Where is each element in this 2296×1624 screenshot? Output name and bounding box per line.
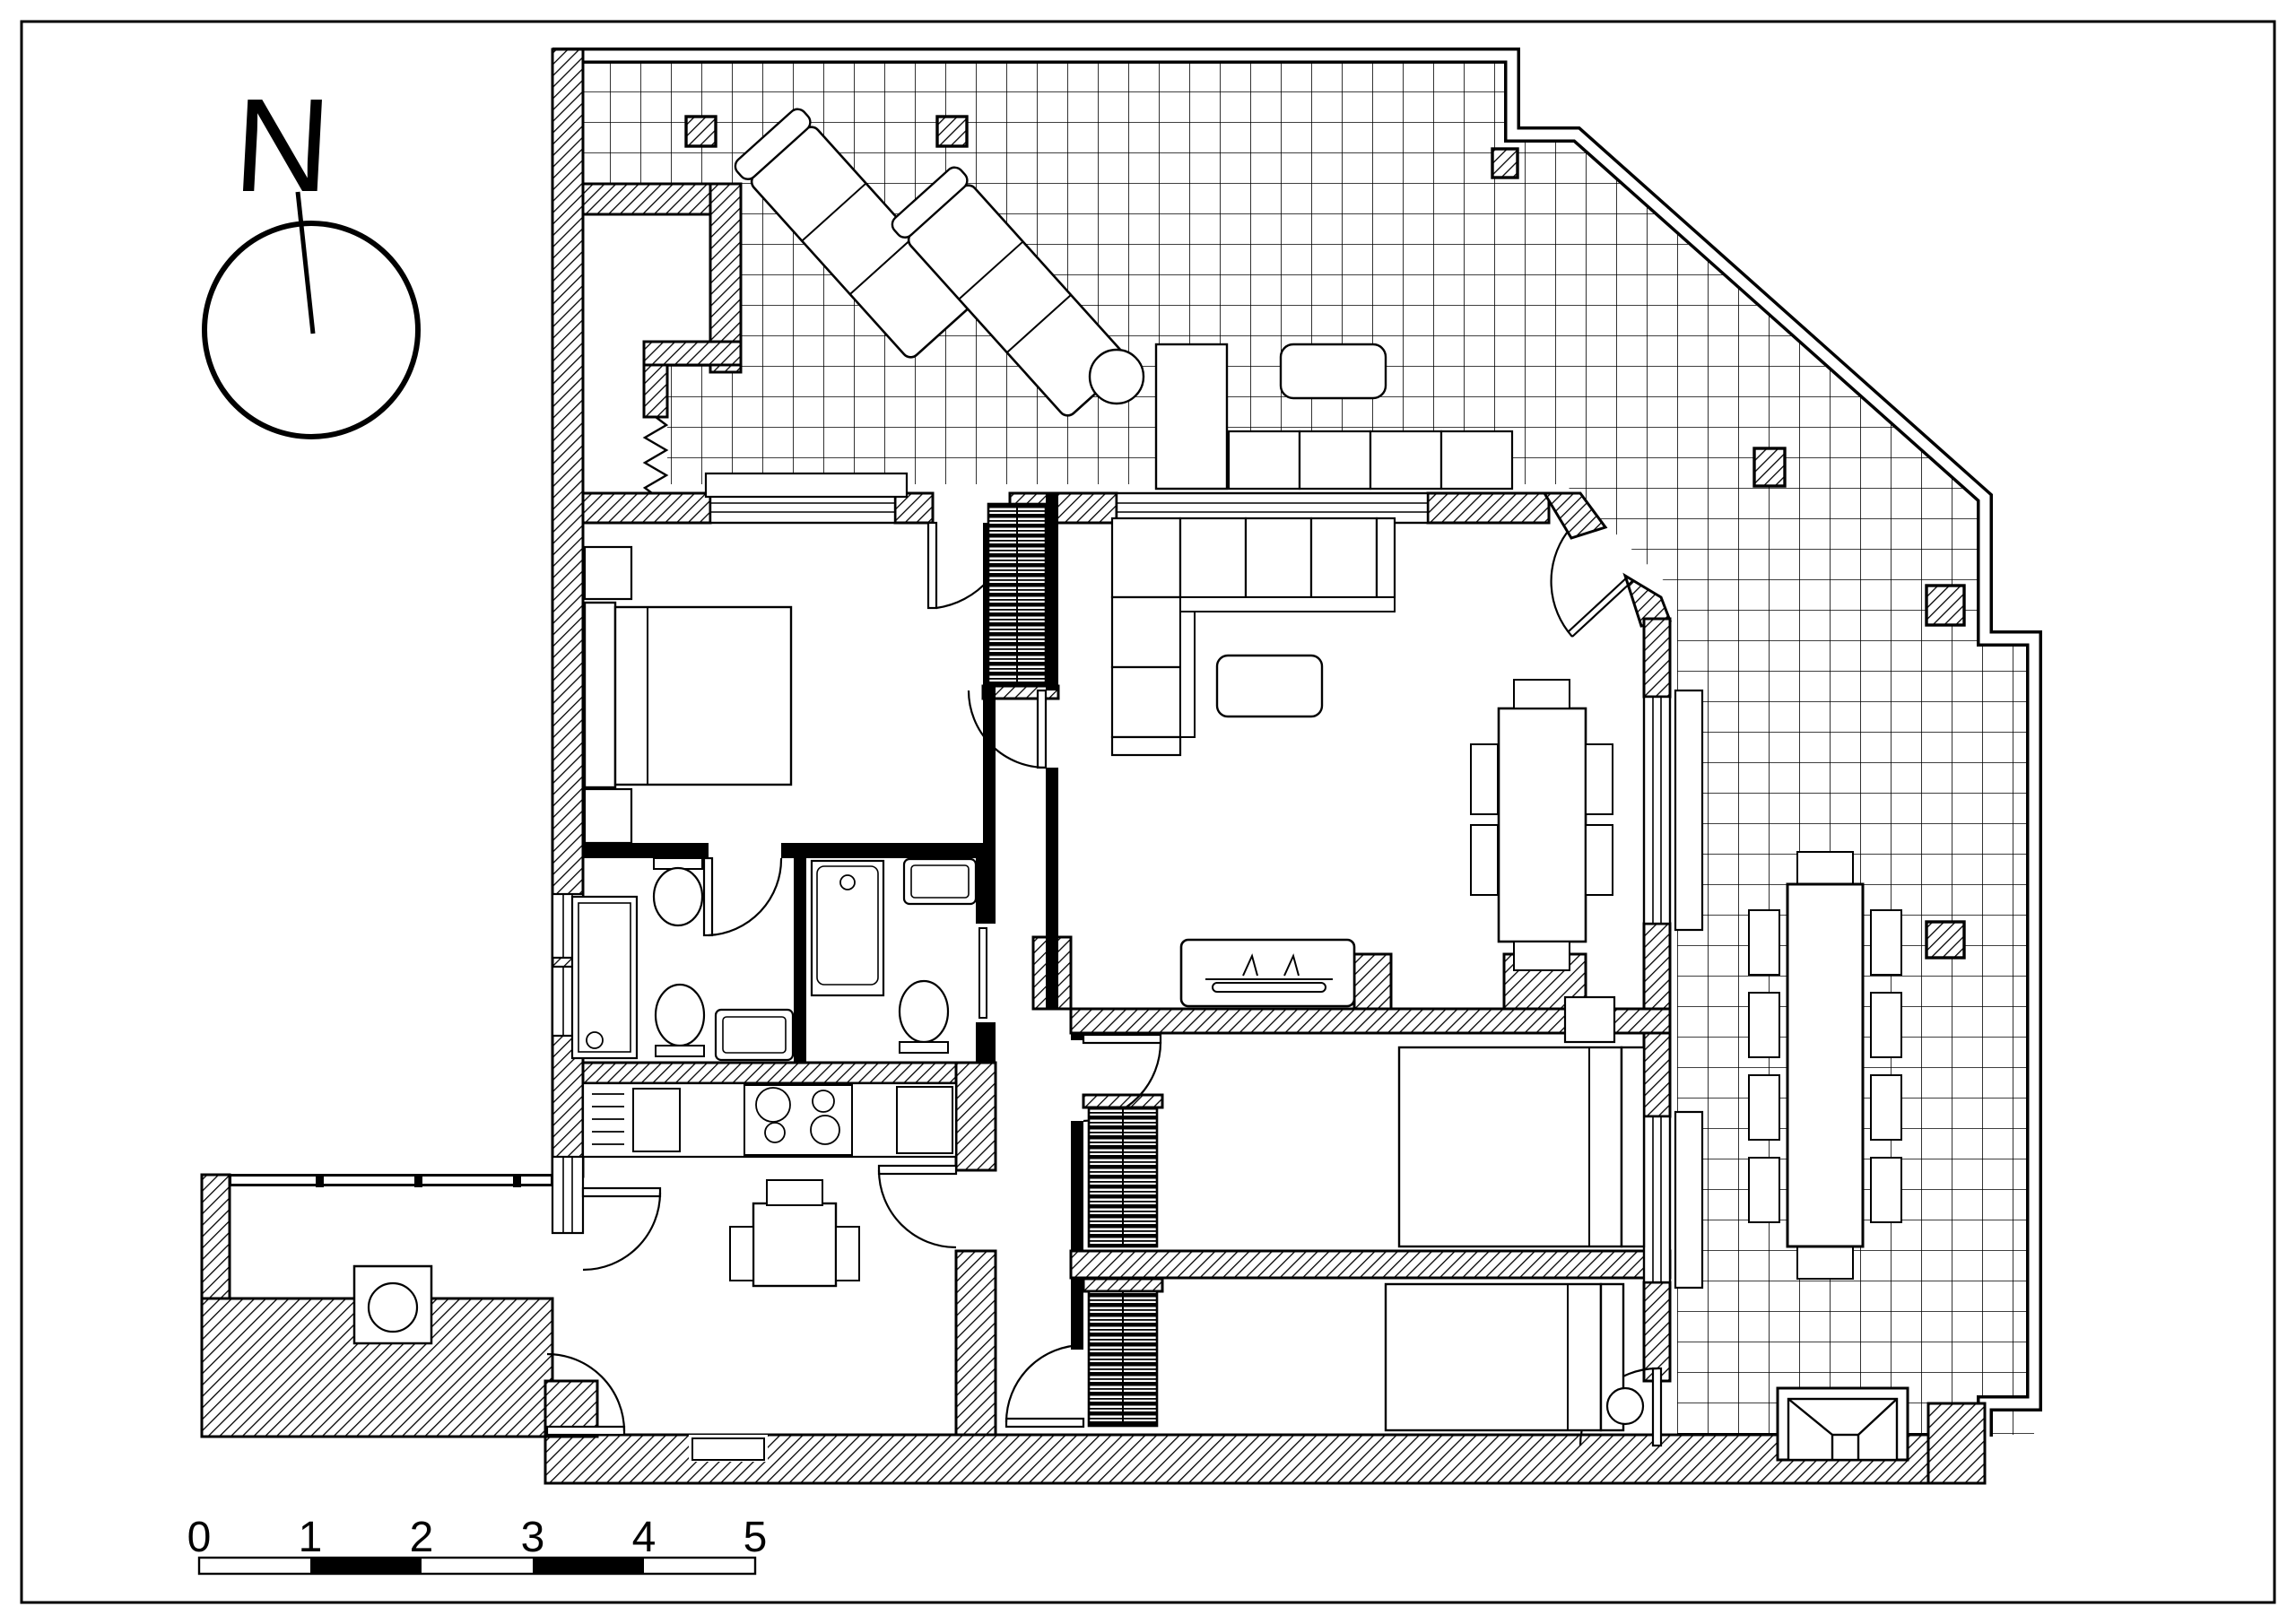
chair	[836, 1227, 859, 1281]
bedroom3	[1386, 1284, 1643, 1430]
closet-cap	[1083, 1279, 1162, 1291]
window-sill	[1675, 690, 1702, 930]
scale-label-5: 5	[744, 1514, 768, 1561]
storage-wall-stub	[644, 365, 667, 417]
column	[1926, 586, 1964, 625]
bathtub-drain-icon	[840, 875, 855, 890]
wall-bath2-right	[976, 1022, 996, 1063]
chair	[1471, 825, 1498, 895]
kitchen-appliance	[897, 1087, 952, 1153]
chair	[1514, 942, 1570, 970]
column	[1754, 448, 1785, 486]
column	[686, 117, 716, 146]
bed-headboard	[1622, 1047, 1644, 1246]
scale-label-0: 0	[187, 1514, 212, 1561]
wall-bed2-left	[1071, 1033, 1083, 1040]
storage-wall-jog	[644, 342, 741, 365]
window-sill	[1675, 1112, 1702, 1288]
wall-pier	[1354, 954, 1391, 1009]
chair	[1586, 744, 1613, 814]
closet-cap	[1083, 1095, 1162, 1107]
outdoor-table	[1281, 344, 1386, 398]
railing-post	[414, 1174, 422, 1187]
chair	[1797, 852, 1853, 884]
toilet	[654, 868, 702, 925]
burner-icon	[811, 1116, 839, 1144]
sofa-armrest	[1377, 518, 1395, 597]
dining-table	[1499, 708, 1586, 942]
nightstand	[585, 547, 631, 599]
planter	[1156, 344, 1227, 489]
wall-bed2-bed3	[1071, 1251, 1670, 1278]
sofa-cushion	[1112, 667, 1180, 737]
window-kitchen-left	[552, 1157, 583, 1233]
wall-kitchen-right	[956, 1251, 996, 1435]
coffee-table	[1217, 656, 1322, 716]
double-bed	[615, 607, 791, 785]
chair	[1871, 993, 1901, 1057]
entry-step	[692, 1438, 764, 1460]
wall-bed1-bath	[781, 843, 996, 858]
chair	[1586, 825, 1613, 895]
sofa-front-edge	[1180, 612, 1195, 737]
wall-bed2-left	[1071, 1121, 1083, 1251]
sofa-corner	[1112, 518, 1180, 597]
wall-top-seg	[583, 493, 710, 523]
bed-headboard	[585, 603, 615, 787]
burner-icon	[813, 1090, 834, 1112]
scale-label-2: 2	[410, 1514, 434, 1561]
scale-bar-body	[199, 1558, 755, 1574]
scale-bar-black-seg	[533, 1558, 644, 1574]
side-table	[1607, 1388, 1643, 1424]
bidet	[656, 985, 704, 1046]
balcony	[202, 1174, 552, 1446]
window-sill	[706, 473, 907, 497]
chair	[1749, 1158, 1779, 1222]
long-table	[1787, 884, 1863, 1246]
shower-drain-icon	[587, 1032, 603, 1048]
drawing-sheet: N	[0, 0, 2296, 1624]
railing-post	[513, 1174, 521, 1187]
sideboard	[1181, 940, 1354, 1006]
chair	[1871, 1075, 1901, 1140]
wall-bed1-bath	[583, 843, 709, 858]
toilet-tank	[900, 1042, 948, 1053]
wall-right-seg	[1644, 619, 1670, 697]
bench-cushion	[1229, 431, 1300, 489]
nightstand	[585, 789, 631, 843]
scale-label-4: 4	[632, 1514, 657, 1561]
burner-icon	[765, 1123, 785, 1142]
sofa-cushion	[1246, 518, 1311, 597]
scale-label-1: 1	[299, 1514, 323, 1561]
decor-bowl-icon	[1213, 983, 1326, 992]
sofa-armrest	[1112, 737, 1180, 755]
sliding-door-bath2	[979, 928, 987, 1018]
wall-kitchen-right	[956, 1063, 996, 1170]
burner-icon	[756, 1088, 790, 1122]
wall-bed3-left	[1071, 1278, 1083, 1350]
chair	[1871, 1158, 1901, 1222]
chair	[767, 1180, 822, 1205]
skylight-chute	[1832, 1435, 1858, 1460]
wall-top-seg	[1428, 493, 1549, 523]
toilet	[900, 981, 948, 1042]
scale-label-3: 3	[521, 1514, 545, 1561]
wall-bath-kitchen	[583, 1063, 996, 1083]
chair	[730, 1227, 753, 1281]
railing-post	[316, 1174, 324, 1187]
chair	[1749, 1075, 1779, 1140]
sofa-front-edge	[1180, 597, 1395, 612]
side-table-round	[1090, 350, 1144, 404]
bench-cushion	[1300, 431, 1370, 489]
chair	[1514, 680, 1570, 708]
north-label: N	[230, 72, 335, 220]
wall-right-seg	[1644, 1282, 1670, 1381]
sofa-cushion	[1112, 597, 1180, 667]
wall-hall-living	[1046, 768, 1058, 1009]
chair	[1749, 910, 1779, 975]
shower-tray	[578, 903, 631, 1052]
bidet-base	[656, 1046, 704, 1056]
scale-bar-black-seg	[310, 1558, 422, 1574]
bench-cushion	[1441, 431, 1512, 489]
column	[1926, 922, 1964, 958]
chair	[1471, 744, 1498, 814]
window-bedroom1	[706, 473, 907, 523]
nightstand	[1565, 997, 1614, 1042]
column	[1492, 149, 1518, 178]
sink-basin	[723, 1017, 786, 1053]
chair	[1797, 1246, 1853, 1279]
bench-cushion	[1370, 431, 1441, 489]
kitchen-sink	[633, 1089, 680, 1151]
sofa-cushion	[1180, 518, 1246, 597]
chair	[1871, 910, 1901, 975]
wall-bottom-step	[1928, 1403, 1985, 1483]
wall-bath2-right	[976, 858, 996, 924]
wall-hall-living	[1046, 493, 1058, 690]
chair	[1749, 993, 1779, 1057]
sofa-cushion	[1311, 518, 1377, 597]
double-bed	[1399, 1047, 1622, 1246]
wall-bath-divider	[794, 858, 806, 1063]
terrace-skylight	[1778, 1388, 1908, 1460]
sink-basin	[911, 865, 969, 898]
column	[937, 117, 967, 146]
kitchen-table	[753, 1203, 836, 1286]
